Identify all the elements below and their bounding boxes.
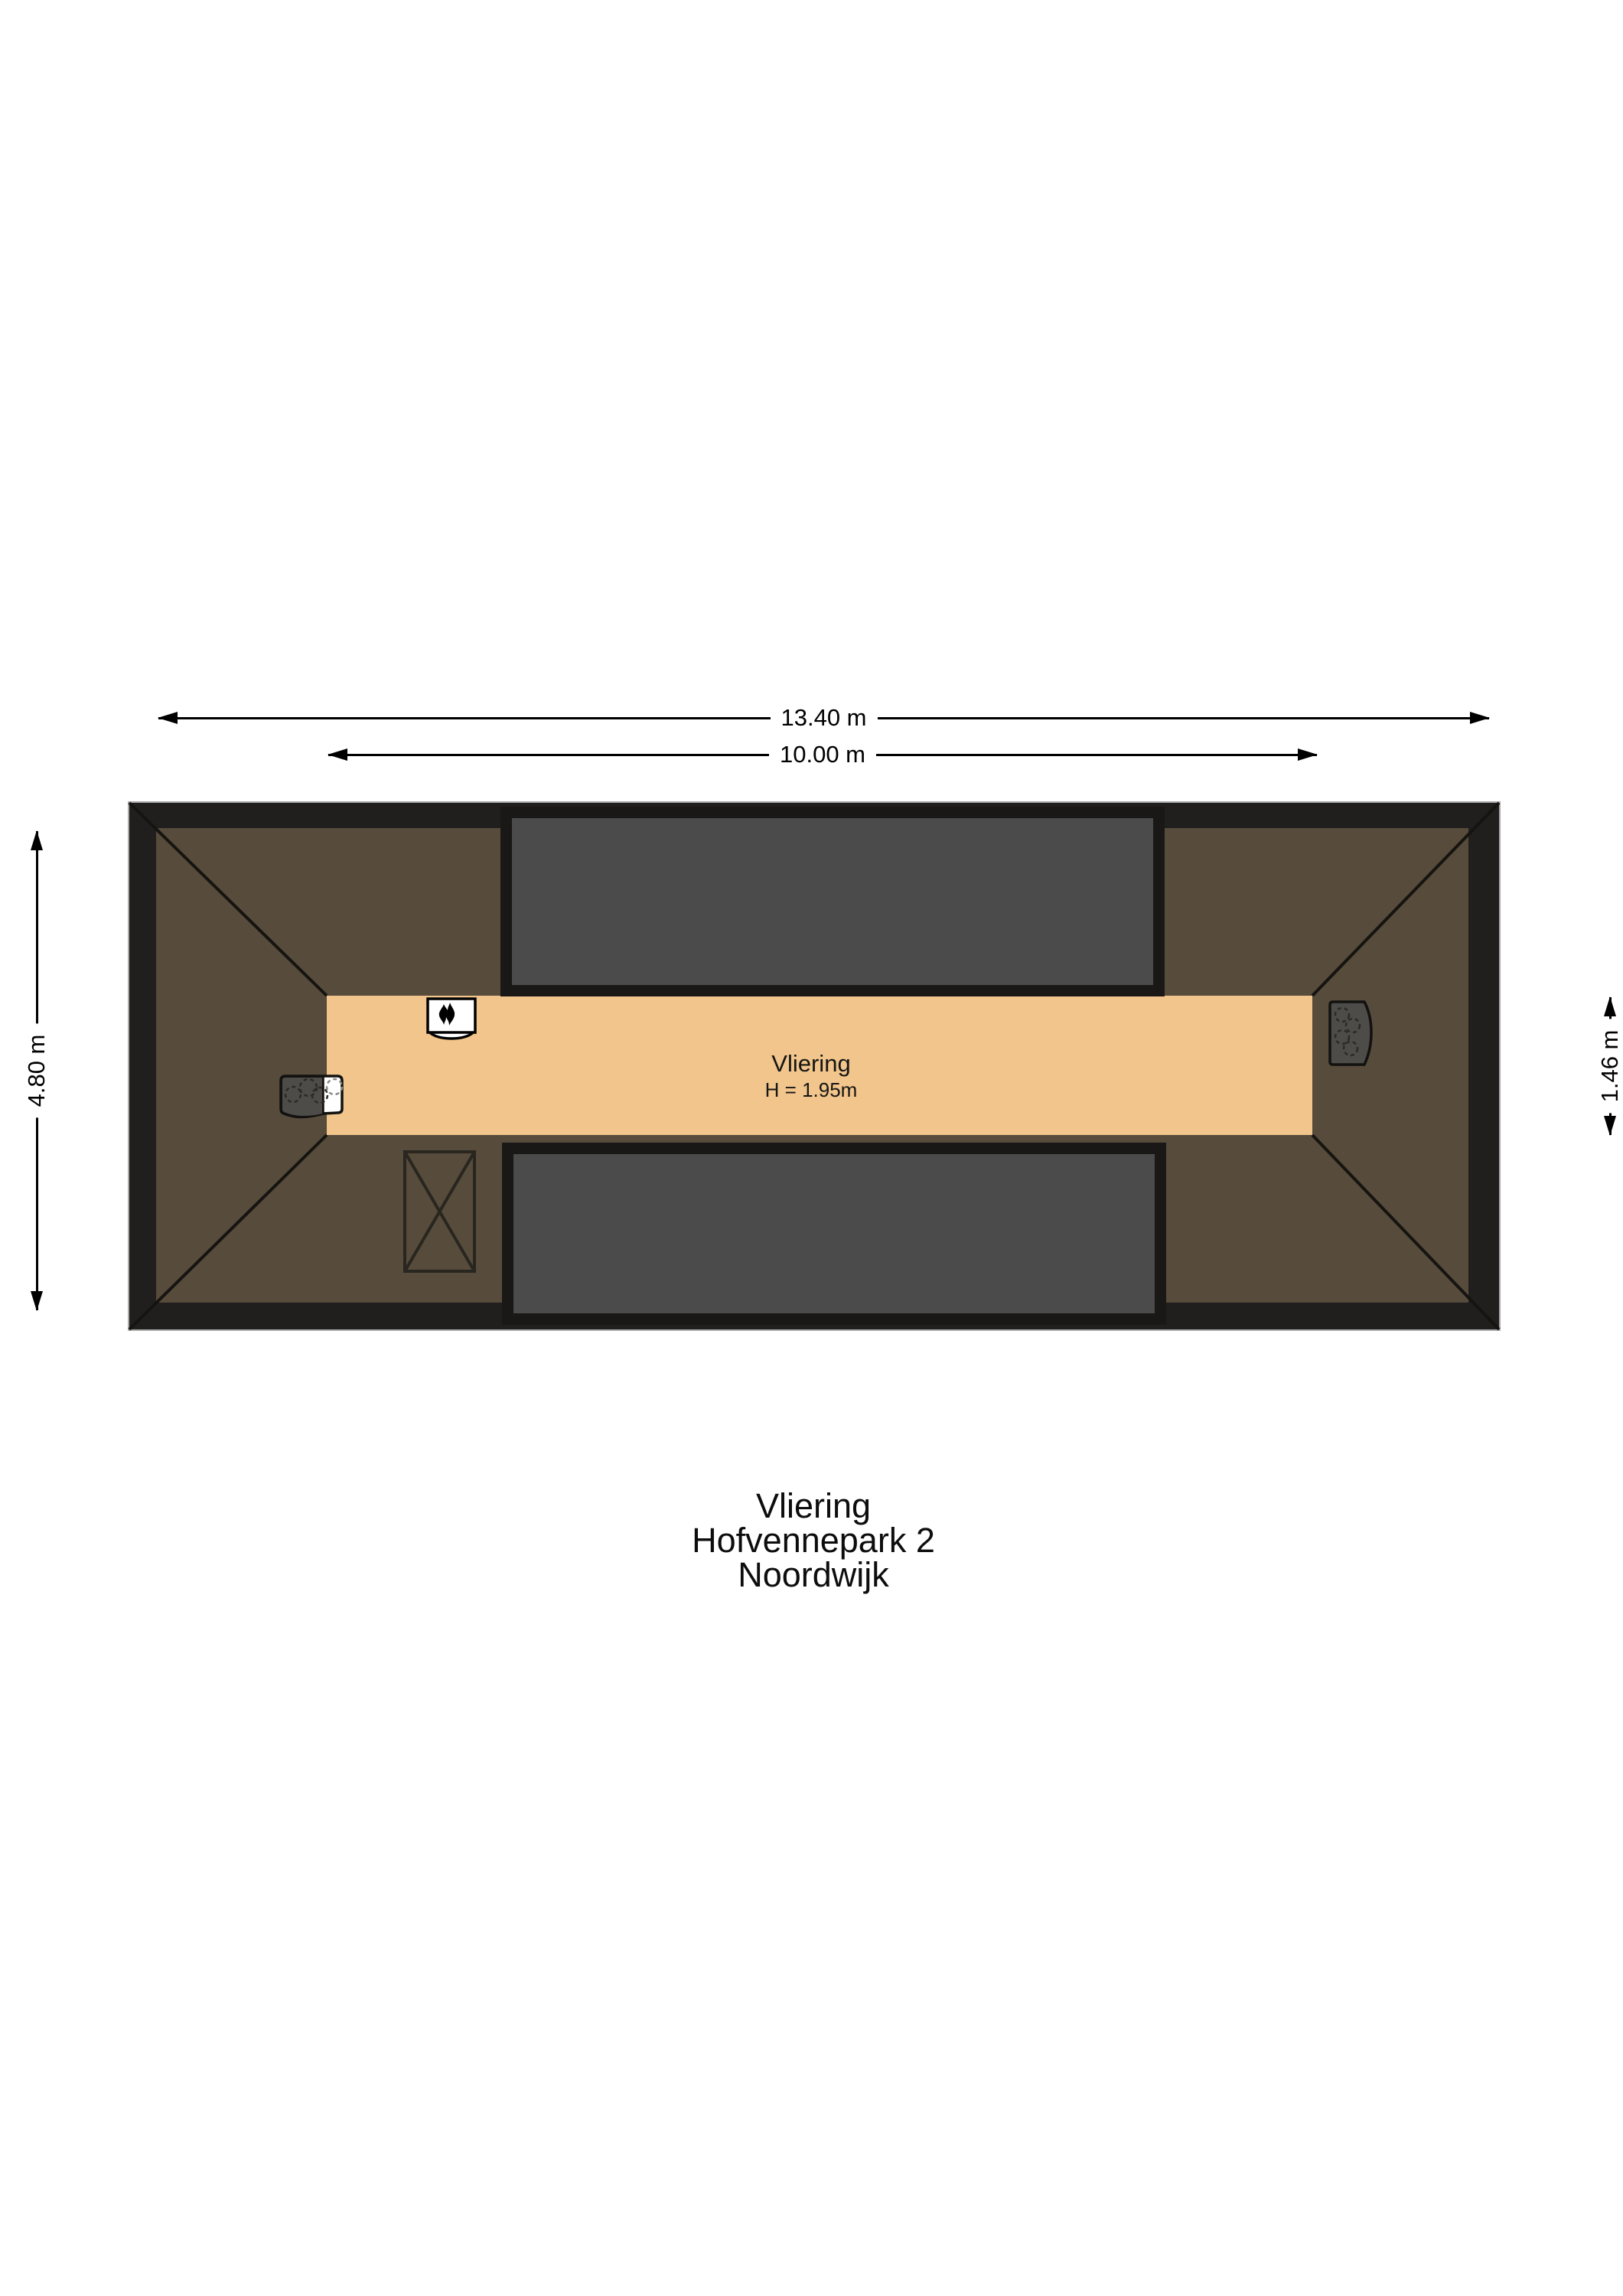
plan-title-street: Hofvennepark 2 [507, 1523, 1119, 1557]
arrowhead-left-icon [328, 748, 347, 761]
arrowhead-right-icon [1470, 712, 1490, 724]
dimension-outer-width: 13.40 m [158, 707, 1489, 729]
dimension-inner-width: 10.00 m [328, 744, 1317, 765]
ventilation-unit-icon [1326, 998, 1377, 1068]
dimension-outer-width-label: 13.40 m [770, 703, 877, 733]
arrowhead-right-icon [1298, 748, 1318, 761]
dimension-left-height-label: 4.80 m [21, 1024, 52, 1118]
room-height-label: H = 1.95m [696, 1079, 926, 1101]
plan-title: Vliering Hofvennepark 2 Noordwijk [507, 1489, 1119, 1592]
dimension-right-height: 1.46 m [1599, 997, 1621, 1135]
arrowhead-down-icon [1604, 1116, 1616, 1136]
arrowhead-up-icon [31, 830, 43, 850]
plan-title-room: Vliering [507, 1489, 1119, 1523]
room-name-label: Vliering [696, 1052, 926, 1076]
arrowhead-down-icon [31, 1291, 43, 1311]
appliance-burners-icon [275, 1073, 346, 1122]
boiler-flame-icon [422, 993, 479, 1049]
dimension-right-height-label: 1.46 m [1595, 1019, 1623, 1114]
roof-panel-top [500, 807, 1165, 996]
floorplan-sheet: Vliering H = 1.95m 13.40 m 10.00 m 4.80 … [0, 0, 1623, 2296]
dimension-left-height: 4.80 m [26, 831, 47, 1310]
plan-title-city: Noordwijk [507, 1557, 1119, 1592]
dimension-inner-width-label: 10.00 m [769, 739, 876, 770]
stair-opening-icon [402, 1149, 477, 1274]
arrowhead-up-icon [1604, 996, 1616, 1016]
arrowhead-left-icon [158, 712, 178, 724]
roof-panel-bottom [502, 1143, 1166, 1325]
